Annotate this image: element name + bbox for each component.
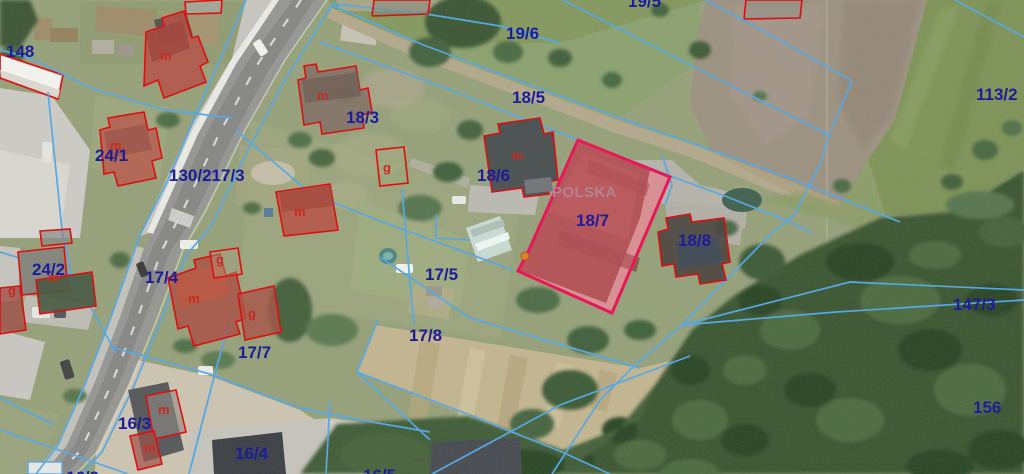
svg-text:m: m [188,291,200,306]
svg-text:m: m [512,148,524,163]
svg-text:19/6: 19/6 [506,24,539,43]
svg-text:148: 148 [6,42,34,61]
svg-text:17/7: 17/7 [238,343,271,362]
svg-text:147/3: 147/3 [953,295,996,314]
svg-text:POLSKA: POLSKA [552,184,617,201]
svg-text:17/4: 17/4 [145,268,179,287]
svg-text:18/3: 18/3 [346,108,379,127]
svg-text:18/7: 18/7 [576,211,609,230]
svg-text:18/6: 18/6 [477,166,510,185]
svg-text:113/2: 113/2 [976,85,1018,104]
svg-text:g: g [216,252,224,267]
svg-text:18/8: 18/8 [678,231,711,250]
svg-text:g: g [383,160,391,175]
svg-text:18/5: 18/5 [512,88,545,107]
svg-text:g: g [248,306,256,321]
svg-text:156: 156 [973,398,1001,417]
svg-text:19/5: 19/5 [628,0,661,11]
svg-text:m: m [48,270,60,285]
svg-text:17/8: 17/8 [409,326,442,345]
svg-text:17/5: 17/5 [425,265,458,284]
svg-text:m: m [317,88,329,103]
svg-text:m: m [110,138,122,153]
svg-text:16/9: 16/9 [66,468,99,474]
svg-text:m: m [294,204,306,219]
svg-text:16/3: 16/3 [118,414,151,433]
svg-text:16/4: 16/4 [235,444,269,463]
svg-text:m: m [158,402,170,417]
svg-text:130/217/3: 130/217/3 [169,166,245,185]
svg-text:g: g [8,283,16,298]
svg-text:16/5: 16/5 [363,466,396,474]
svg-text:m: m [160,48,172,63]
svg-text:m: m [144,440,156,455]
